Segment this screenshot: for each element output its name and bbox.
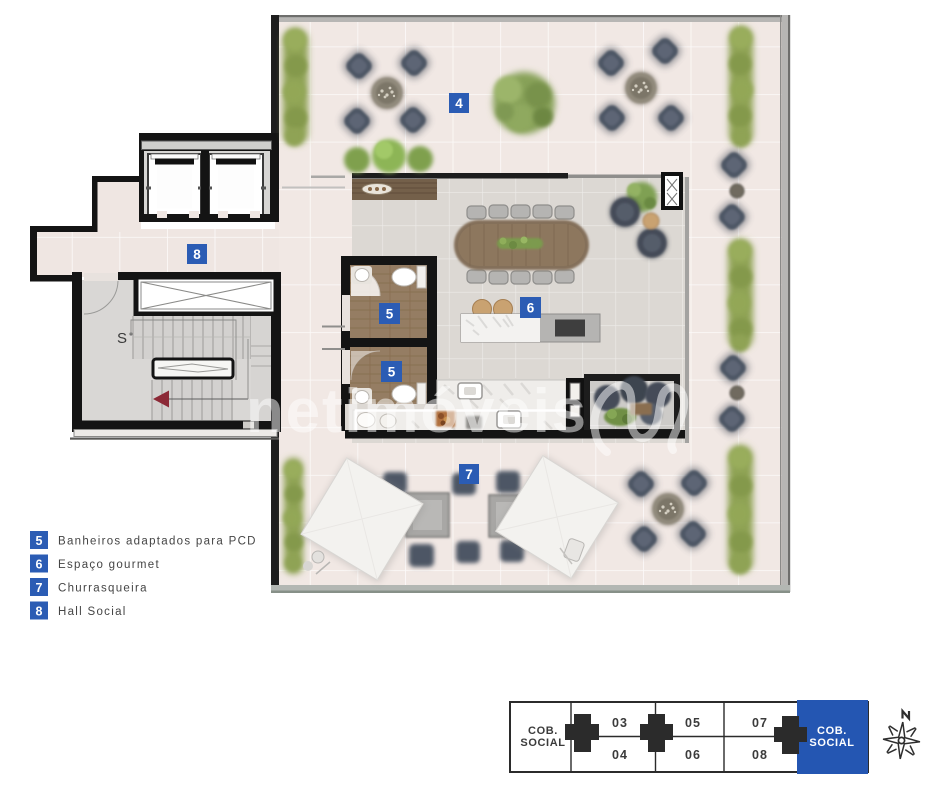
- svg-text:03: 03: [612, 716, 628, 730]
- svg-text:Espaço gourmet: Espaço gourmet: [58, 559, 160, 571]
- svg-text:S: S: [117, 330, 127, 347]
- svg-text:07: 07: [752, 716, 768, 730]
- svg-text:7: 7: [465, 467, 473, 482]
- svg-text:06: 06: [685, 748, 701, 762]
- svg-text:Churrasqueira: Churrasqueira: [58, 583, 148, 595]
- svg-text:COB.: COB.: [528, 725, 558, 737]
- svg-text:7: 7: [36, 581, 43, 595]
- svg-text:Banheiros adaptados para PCD: Banheiros adaptados para PCD: [58, 536, 257, 548]
- svg-text:COB.: COB.: [817, 725, 847, 737]
- svg-text:SOCIAL: SOCIAL: [809, 737, 854, 749]
- svg-text:04: 04: [612, 748, 628, 762]
- svg-text:netimóveis: netimóveis: [246, 377, 588, 446]
- svg-text:Hall Social: Hall Social: [58, 606, 127, 618]
- svg-text:5: 5: [386, 307, 394, 322]
- svg-text:4: 4: [455, 96, 463, 111]
- svg-text:8: 8: [193, 247, 201, 262]
- svg-text:8: 8: [36, 605, 43, 619]
- svg-text:5: 5: [36, 534, 43, 548]
- svg-text:SOCIAL: SOCIAL: [520, 737, 565, 749]
- svg-text:08: 08: [752, 748, 768, 762]
- svg-text:6: 6: [527, 301, 535, 316]
- svg-text:05: 05: [685, 716, 701, 730]
- svg-text:6: 6: [36, 558, 43, 572]
